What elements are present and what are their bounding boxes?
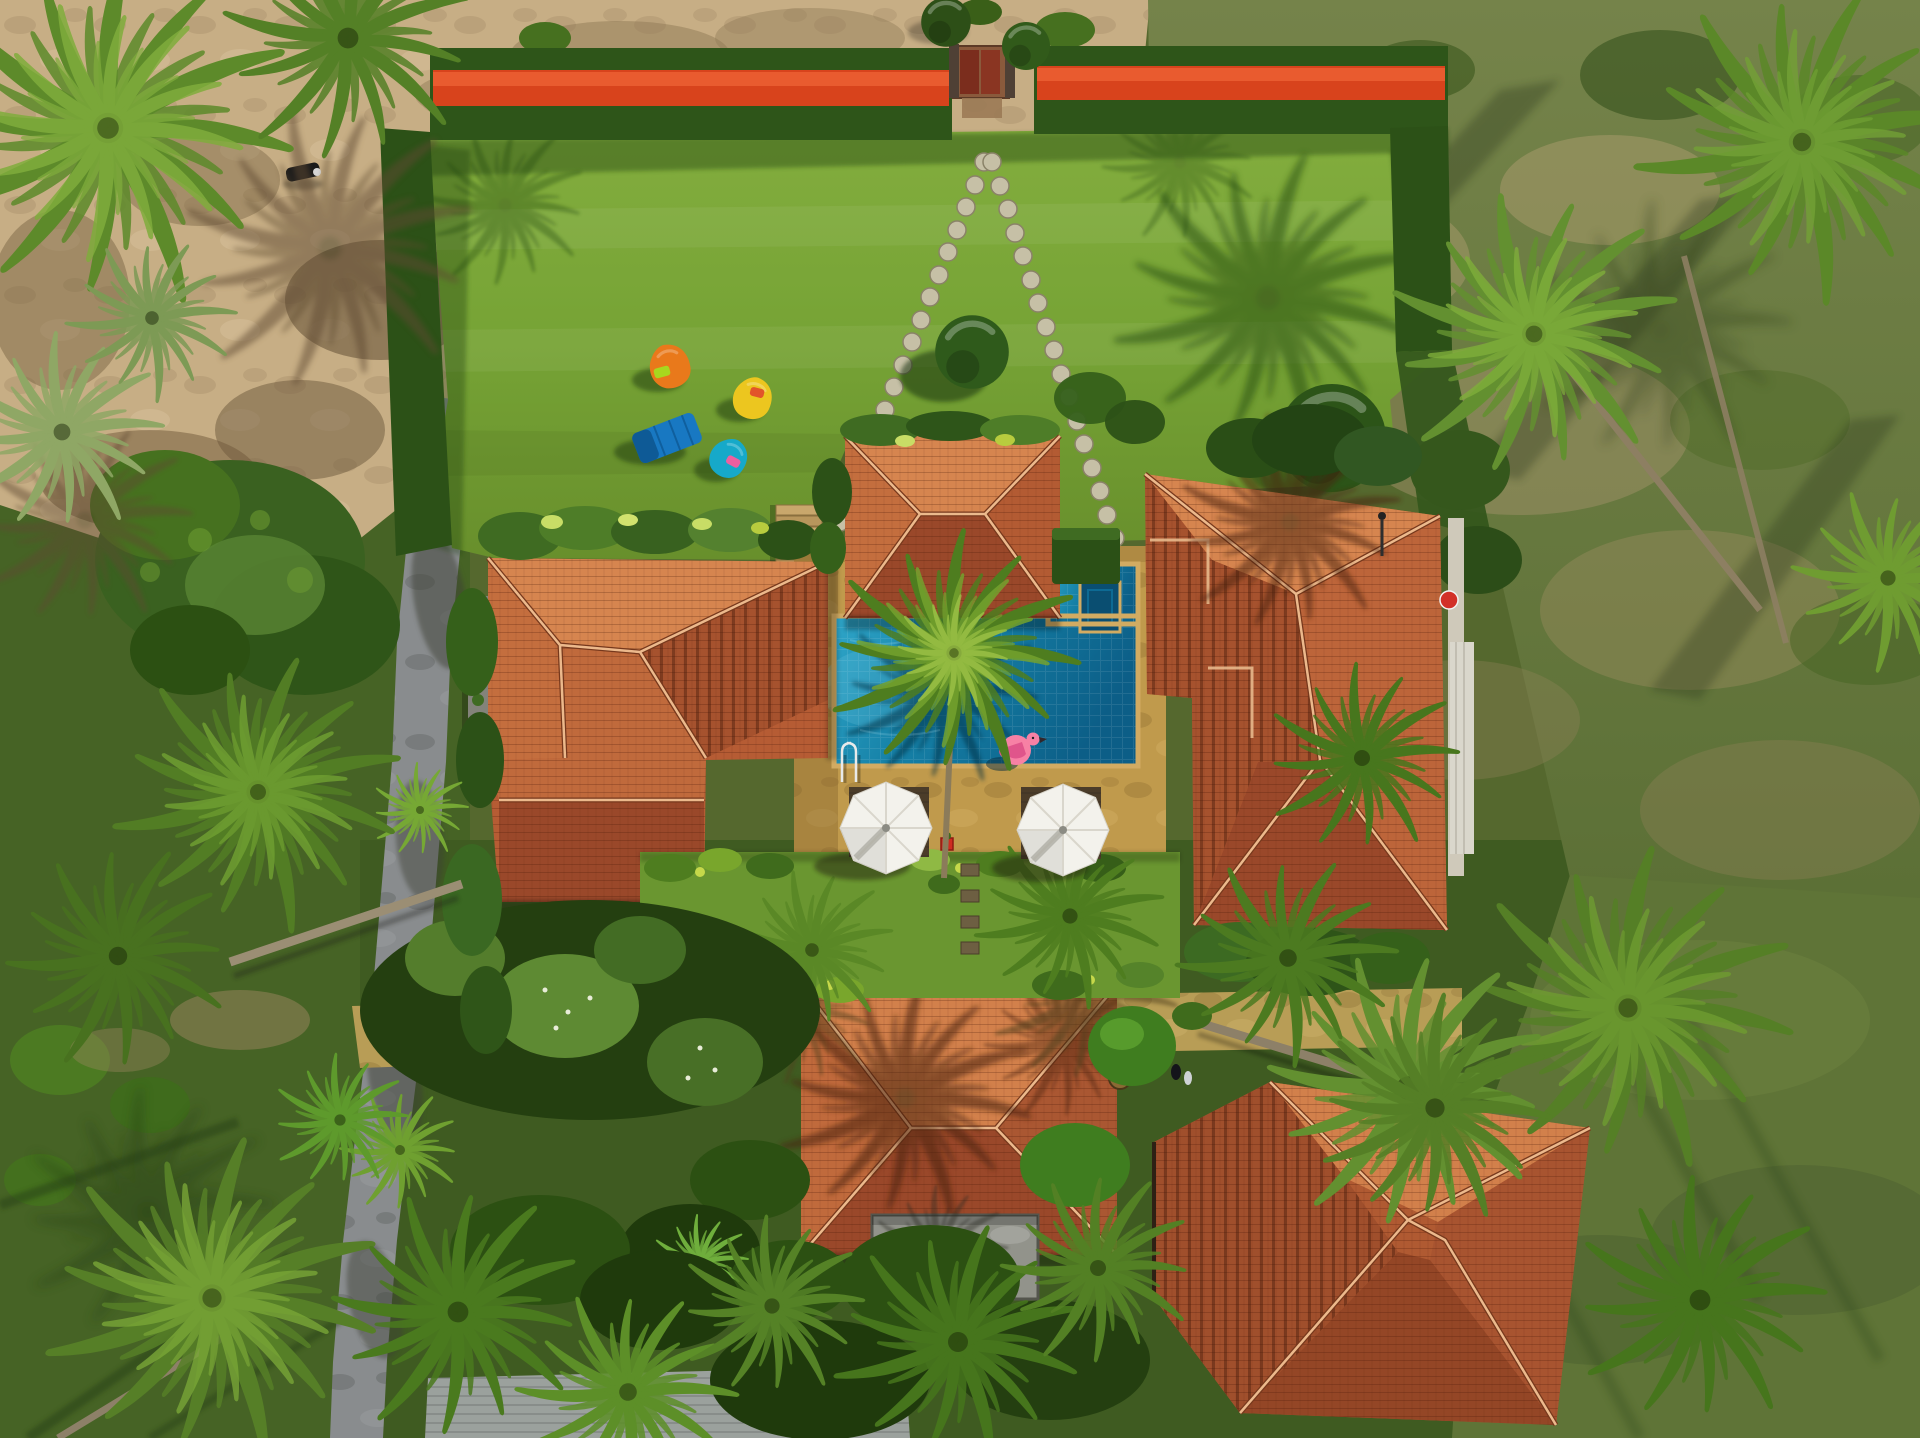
use <box>948 221 966 239</box>
aerial-villa-photo <box>0 0 1920 1438</box>
ellipse <box>1105 400 1165 444</box>
ellipse <box>895 435 915 447</box>
ellipse <box>446 588 498 696</box>
east-canopy <box>1450 642 1474 854</box>
umbrella <box>840 782 932 874</box>
garden-stone <box>961 864 979 876</box>
garden-stone <box>961 916 979 928</box>
use <box>1098 506 1116 524</box>
use <box>921 288 939 306</box>
use <box>1037 318 1055 336</box>
circle <box>566 1010 571 1015</box>
circle <box>287 567 313 593</box>
ellipse <box>644 854 696 882</box>
lamp-head <box>1378 512 1386 520</box>
use <box>999 200 1017 218</box>
circle <box>313 168 321 176</box>
satellite-dish <box>1440 591 1458 609</box>
use <box>885 378 903 396</box>
use <box>1091 482 1109 500</box>
ellipse <box>1100 1018 1144 1050</box>
ellipse <box>906 411 994 441</box>
circle <box>1032 737 1034 739</box>
gate-path <box>962 98 1002 118</box>
person <box>1171 1064 1181 1080</box>
use <box>1006 224 1024 242</box>
ellipse <box>692 518 712 530</box>
ellipse <box>456 712 504 808</box>
ellipse <box>751 522 769 534</box>
ellipse <box>1334 426 1422 486</box>
circle <box>140 562 160 582</box>
ellipse <box>1172 1002 1212 1030</box>
ellipse <box>541 515 563 529</box>
person <box>1184 1071 1192 1085</box>
ellipse <box>170 990 310 1050</box>
gate-bush <box>1002 22 1050 70</box>
use <box>1022 271 1040 289</box>
ellipse <box>995 434 1015 446</box>
use <box>1075 435 1093 453</box>
flower-highlight-left <box>433 72 949 86</box>
circle <box>695 867 705 877</box>
use <box>930 266 948 284</box>
use <box>903 333 921 351</box>
circle <box>713 1068 718 1073</box>
ellipse <box>618 514 638 526</box>
ellipse <box>1032 970 1088 1000</box>
circle <box>554 1026 559 1031</box>
flower-highlight-right <box>1037 68 1445 81</box>
use <box>1014 247 1032 265</box>
ellipse <box>698 848 742 872</box>
ellipse <box>1020 1123 1130 1207</box>
scene-root <box>0 0 1920 1438</box>
ellipse <box>990 1226 1030 1244</box>
ellipse <box>594 916 686 984</box>
ellipse <box>110 1077 190 1133</box>
use <box>991 177 1009 195</box>
eave-shadow <box>826 562 838 760</box>
ellipse <box>1640 740 1920 880</box>
ellipse <box>810 522 846 574</box>
use <box>1029 294 1047 312</box>
ellipse <box>647 1018 763 1106</box>
circle <box>588 996 593 1001</box>
ellipse <box>1410 430 1510 510</box>
circle <box>686 1076 691 1081</box>
gate-post <box>949 44 959 98</box>
ellipse <box>980 415 1060 445</box>
use <box>939 243 957 261</box>
use <box>957 198 975 216</box>
gate-door <box>960 50 979 94</box>
circle <box>698 1046 703 1051</box>
aerial-photo-stage <box>0 0 1920 1438</box>
gate-door <box>981 50 1000 94</box>
circle <box>188 528 212 552</box>
ellipse <box>460 966 512 1054</box>
circle <box>543 988 548 993</box>
ellipse <box>812 458 852 526</box>
use <box>1083 459 1101 477</box>
use <box>912 311 930 329</box>
ellipse <box>746 853 794 879</box>
use <box>983 153 1001 171</box>
ellipse <box>1434 526 1522 594</box>
umbrella <box>1017 784 1109 876</box>
garden-stone <box>961 890 979 902</box>
circle <box>250 510 270 530</box>
use <box>1045 341 1063 359</box>
rect <box>1052 528 1120 540</box>
garden-stone <box>961 942 979 954</box>
use <box>966 176 984 194</box>
round-bush <box>935 315 1009 389</box>
